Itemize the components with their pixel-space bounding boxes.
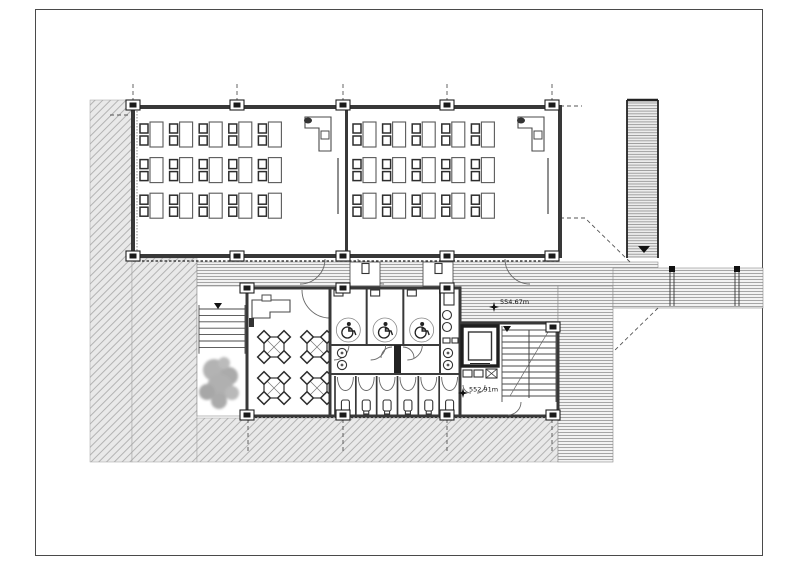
column-marker: [546, 322, 560, 332]
chair: [199, 195, 207, 204]
desk: [239, 193, 252, 218]
cistern: [371, 290, 380, 296]
chair: [258, 124, 266, 133]
partition-wall: [394, 345, 401, 373]
column-marker: [240, 283, 254, 293]
desk: [363, 158, 376, 183]
elevator: [462, 326, 498, 367]
column-marker: [440, 410, 454, 420]
toilet: [444, 292, 454, 305]
desk: [393, 122, 406, 147]
chair: [140, 160, 148, 169]
floor-plan-svg: 554.67m 552.91m: [0, 0, 800, 565]
chair: [258, 160, 266, 169]
chair: [412, 136, 420, 145]
ramp: [627, 100, 658, 258]
drawing-sheet: 554.67m 552.91m: [0, 0, 800, 565]
column-marker: [126, 251, 140, 261]
desk: [180, 158, 193, 183]
column-marker: [546, 410, 560, 420]
toilet: [446, 400, 454, 411]
chair: [199, 160, 207, 169]
basin: [443, 323, 452, 332]
desk: [363, 122, 376, 147]
chair: [442, 195, 450, 204]
chair: [140, 136, 148, 145]
toilet: [362, 400, 370, 411]
chair: [442, 160, 450, 169]
teacher-chair: [517, 118, 525, 124]
cistern: [407, 290, 416, 296]
chair: [383, 136, 391, 145]
desk: [393, 193, 406, 218]
desk: [452, 158, 465, 183]
chair: [229, 195, 237, 204]
chair: [258, 195, 266, 204]
desk: [239, 122, 252, 147]
desk: [363, 193, 376, 218]
chair: [471, 195, 479, 204]
chair: [140, 195, 148, 204]
dashed-annotation: [560, 218, 630, 262]
chair: [140, 124, 148, 133]
dashed-annotation: [613, 308, 658, 352]
column-marker: [440, 283, 454, 293]
column-marker: [440, 100, 454, 110]
chair: [442, 172, 450, 181]
chair: [353, 136, 361, 145]
urinal: [362, 264, 369, 274]
chair: [412, 195, 420, 204]
column-marker: [126, 100, 140, 110]
chair: [383, 124, 391, 133]
chair: [170, 207, 178, 216]
desk: [393, 158, 406, 183]
desk: [481, 193, 494, 218]
desk: [180, 193, 193, 218]
chair: [412, 124, 420, 133]
column-marker: [336, 410, 350, 420]
chair: [442, 124, 450, 133]
chair: [229, 136, 237, 145]
chair: [353, 160, 361, 169]
chair: [412, 160, 420, 169]
desk: [268, 122, 281, 147]
chair: [442, 207, 450, 216]
chair: [471, 124, 479, 133]
chair: [353, 124, 361, 133]
column-marker: [545, 251, 559, 261]
courtyard: [197, 286, 247, 416]
chair: [471, 136, 479, 145]
chair: [383, 195, 391, 204]
chair: [258, 207, 266, 216]
wc-block: [330, 288, 460, 416]
chair: [199, 136, 207, 145]
chair: [471, 172, 479, 181]
desk: [422, 122, 435, 147]
column-marker: [336, 283, 350, 293]
chair: [170, 195, 178, 204]
desk: [209, 193, 222, 218]
column-marker: [230, 100, 244, 110]
chair: [353, 172, 361, 181]
desk: [268, 193, 281, 218]
chair: [170, 172, 178, 181]
desk: [481, 122, 494, 147]
desk: [209, 158, 222, 183]
elevation-label: 554.67m: [500, 298, 529, 306]
chair: [471, 160, 479, 169]
desk: [209, 122, 222, 147]
column-marker: [440, 251, 454, 261]
column-marker: [230, 251, 244, 261]
urinal: [435, 264, 442, 274]
desk: [150, 193, 163, 218]
chair: [249, 318, 254, 327]
toilet: [404, 400, 412, 411]
toilet: [383, 400, 391, 411]
elevation-label: 552.91m: [469, 386, 498, 394]
desk: [150, 122, 163, 147]
desk: [422, 158, 435, 183]
desk: [452, 193, 465, 218]
basin: [463, 370, 472, 377]
chair: [140, 172, 148, 181]
desk: [180, 122, 193, 147]
desk: [422, 193, 435, 218]
chair: [199, 124, 207, 133]
chair: [199, 172, 207, 181]
teacher-chair: [304, 118, 312, 124]
toilet: [425, 400, 433, 411]
column-marker: [240, 410, 254, 420]
desk: [239, 158, 252, 183]
basin: [443, 311, 452, 320]
chair: [229, 160, 237, 169]
chair: [383, 207, 391, 216]
chair: [353, 207, 361, 216]
common-room: [247, 288, 333, 416]
chair: [412, 172, 420, 181]
column-marker: [336, 251, 350, 261]
chair: [229, 124, 237, 133]
chair: [258, 172, 266, 181]
chair: [353, 195, 361, 204]
column-marker: [336, 100, 350, 110]
chair: [140, 207, 148, 216]
chair: [258, 136, 266, 145]
chair: [442, 136, 450, 145]
desk: [452, 122, 465, 147]
chair: [383, 172, 391, 181]
chair: [471, 207, 479, 216]
chair: [170, 136, 178, 145]
chair: [229, 172, 237, 181]
desk: [481, 158, 494, 183]
column-marker: [545, 100, 559, 110]
toilet: [341, 400, 349, 411]
desk: [150, 158, 163, 183]
chair: [170, 124, 178, 133]
chair: [412, 207, 420, 216]
desk: [268, 158, 281, 183]
basin: [474, 370, 483, 377]
chair: [199, 207, 207, 216]
chair: [170, 160, 178, 169]
chair: [229, 207, 237, 216]
chair: [383, 160, 391, 169]
